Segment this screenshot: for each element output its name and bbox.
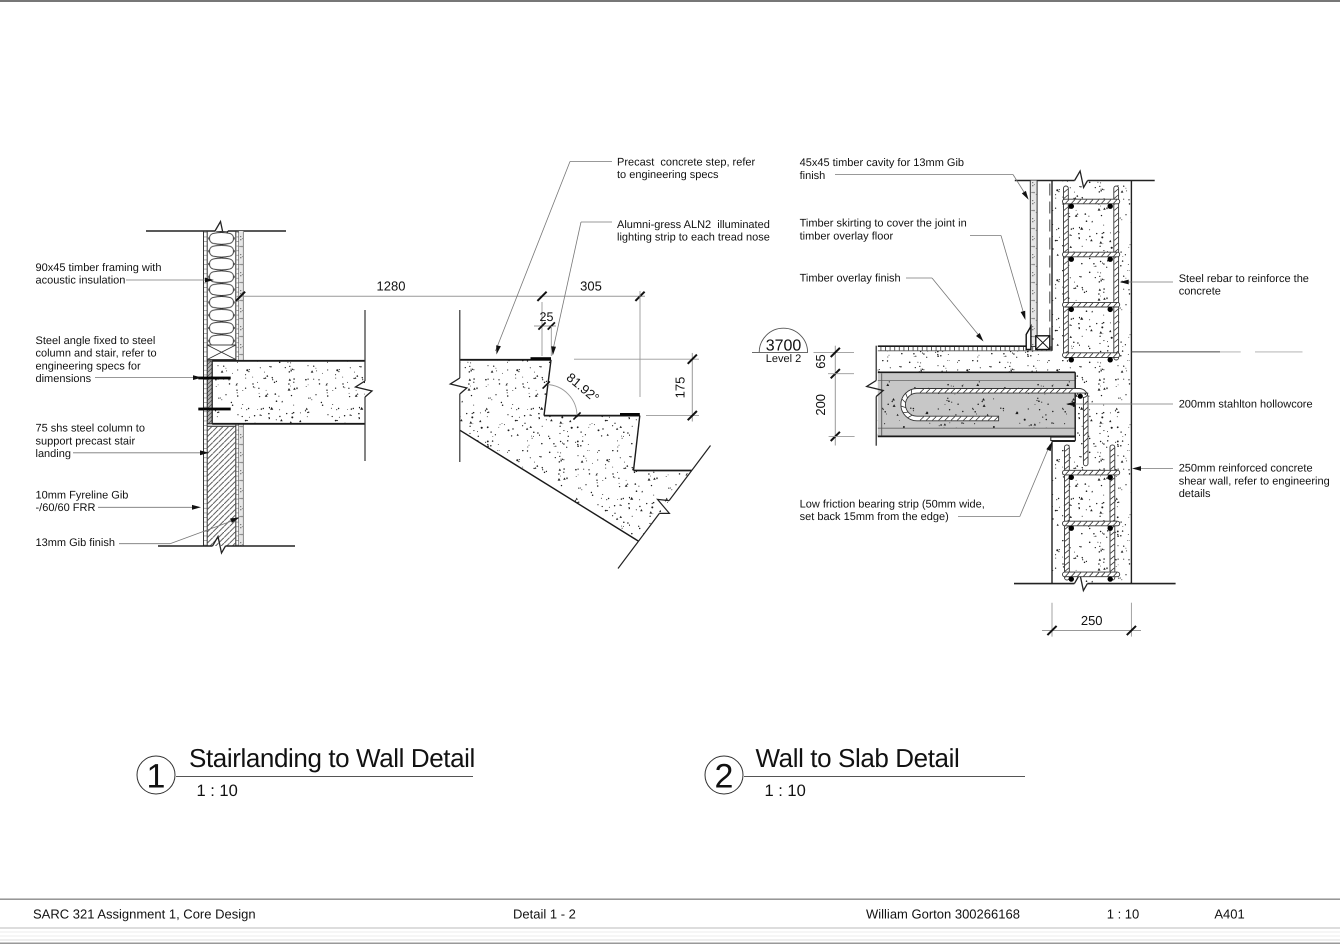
svg-text:90x45 timber framing with: 90x45 timber framing with xyxy=(36,262,162,274)
svg-text:Detail 1 - 2: Detail 1 - 2 xyxy=(513,907,576,922)
svg-text:Steel angle fixed to steel: Steel angle fixed to steel xyxy=(36,335,156,347)
svg-text:acoustic insulation: acoustic insulation xyxy=(36,275,126,287)
svg-text:landing: landing xyxy=(36,448,71,460)
svg-text:65: 65 xyxy=(813,354,828,368)
svg-text:Steel rebar to reinforce the: Steel rebar to reinforce the xyxy=(1179,273,1309,285)
svg-text:details: details xyxy=(1179,488,1211,500)
svg-text:Alumni-gress ALN2 illuminated: Alumni-gress ALN2 illuminated xyxy=(617,219,770,231)
svg-text:250: 250 xyxy=(1081,613,1103,628)
svg-text:2: 2 xyxy=(715,758,734,796)
svg-text:Timber overlay finish: Timber overlay finish xyxy=(800,273,901,285)
svg-text:dimensions: dimensions xyxy=(36,373,92,385)
svg-text:Wall to Slab Detail: Wall to Slab Detail xyxy=(756,743,960,773)
svg-text:1 : 10: 1 : 10 xyxy=(197,782,238,800)
svg-text:25: 25 xyxy=(540,310,554,324)
svg-text:support precast stair: support precast stair xyxy=(36,435,136,447)
svg-text:timber overlay floor: timber overlay floor xyxy=(800,230,894,242)
svg-text:lighting strip to each tread n: lighting strip to each tread nose xyxy=(617,232,770,244)
svg-text:Precast concrete step, refer: Precast concrete step, refer xyxy=(617,157,756,169)
svg-text:200mm stahlton hollowcore: 200mm stahlton hollowcore xyxy=(1179,399,1313,411)
svg-text:Stairlanding to Wall Detail: Stairlanding to Wall Detail xyxy=(189,743,475,773)
svg-text:to engineering specs: to engineering specs xyxy=(617,169,719,181)
svg-text:-/60/60 FRR: -/60/60 FRR xyxy=(36,502,96,514)
svg-text:45x45 timber cavity for 13mm G: 45x45 timber cavity for 13mm Gib xyxy=(800,157,964,169)
svg-text:set back 15mm from the edge): set back 15mm from the edge) xyxy=(800,511,949,523)
svg-text:engineering specs for: engineering specs for xyxy=(36,360,142,372)
svg-text:250mm reinforced concrete: 250mm reinforced concrete xyxy=(1179,463,1313,475)
svg-text:305: 305 xyxy=(580,279,602,294)
svg-text:13mm Gib finish: 13mm Gib finish xyxy=(36,537,115,549)
svg-text:1 : 10: 1 : 10 xyxy=(765,782,806,800)
svg-text:1 : 10: 1 : 10 xyxy=(1107,907,1140,922)
svg-text:1280: 1280 xyxy=(377,279,406,294)
svg-text:1: 1 xyxy=(147,758,166,796)
svg-text:SARC 321 Assignment 1, Core De: SARC 321 Assignment 1, Core Design xyxy=(33,907,256,922)
svg-text:10mm Fyreline Gib: 10mm Fyreline Gib xyxy=(36,490,129,502)
svg-text:175: 175 xyxy=(673,377,688,399)
svg-text:shear wall, refer to engineeri: shear wall, refer to engineering xyxy=(1179,475,1330,487)
svg-text:column and stair, refer to: column and stair, refer to xyxy=(36,348,157,360)
svg-text:William Gorton 300266168: William Gorton 300266168 xyxy=(866,907,1020,922)
svg-text:200: 200 xyxy=(813,394,828,416)
svg-text:75 shs steel column to: 75 shs steel column to xyxy=(36,423,145,435)
svg-text:concrete: concrete xyxy=(1179,286,1221,298)
svg-text:A401: A401 xyxy=(1214,907,1244,922)
svg-text:Level 2: Level 2 xyxy=(766,353,801,365)
svg-text:Low friction bearing strip (50: Low friction bearing strip (50mm wide, xyxy=(800,499,985,511)
svg-text:Timber skirting to cover the j: Timber skirting to cover the joint in xyxy=(800,218,967,230)
svg-text:finish: finish xyxy=(800,170,826,182)
